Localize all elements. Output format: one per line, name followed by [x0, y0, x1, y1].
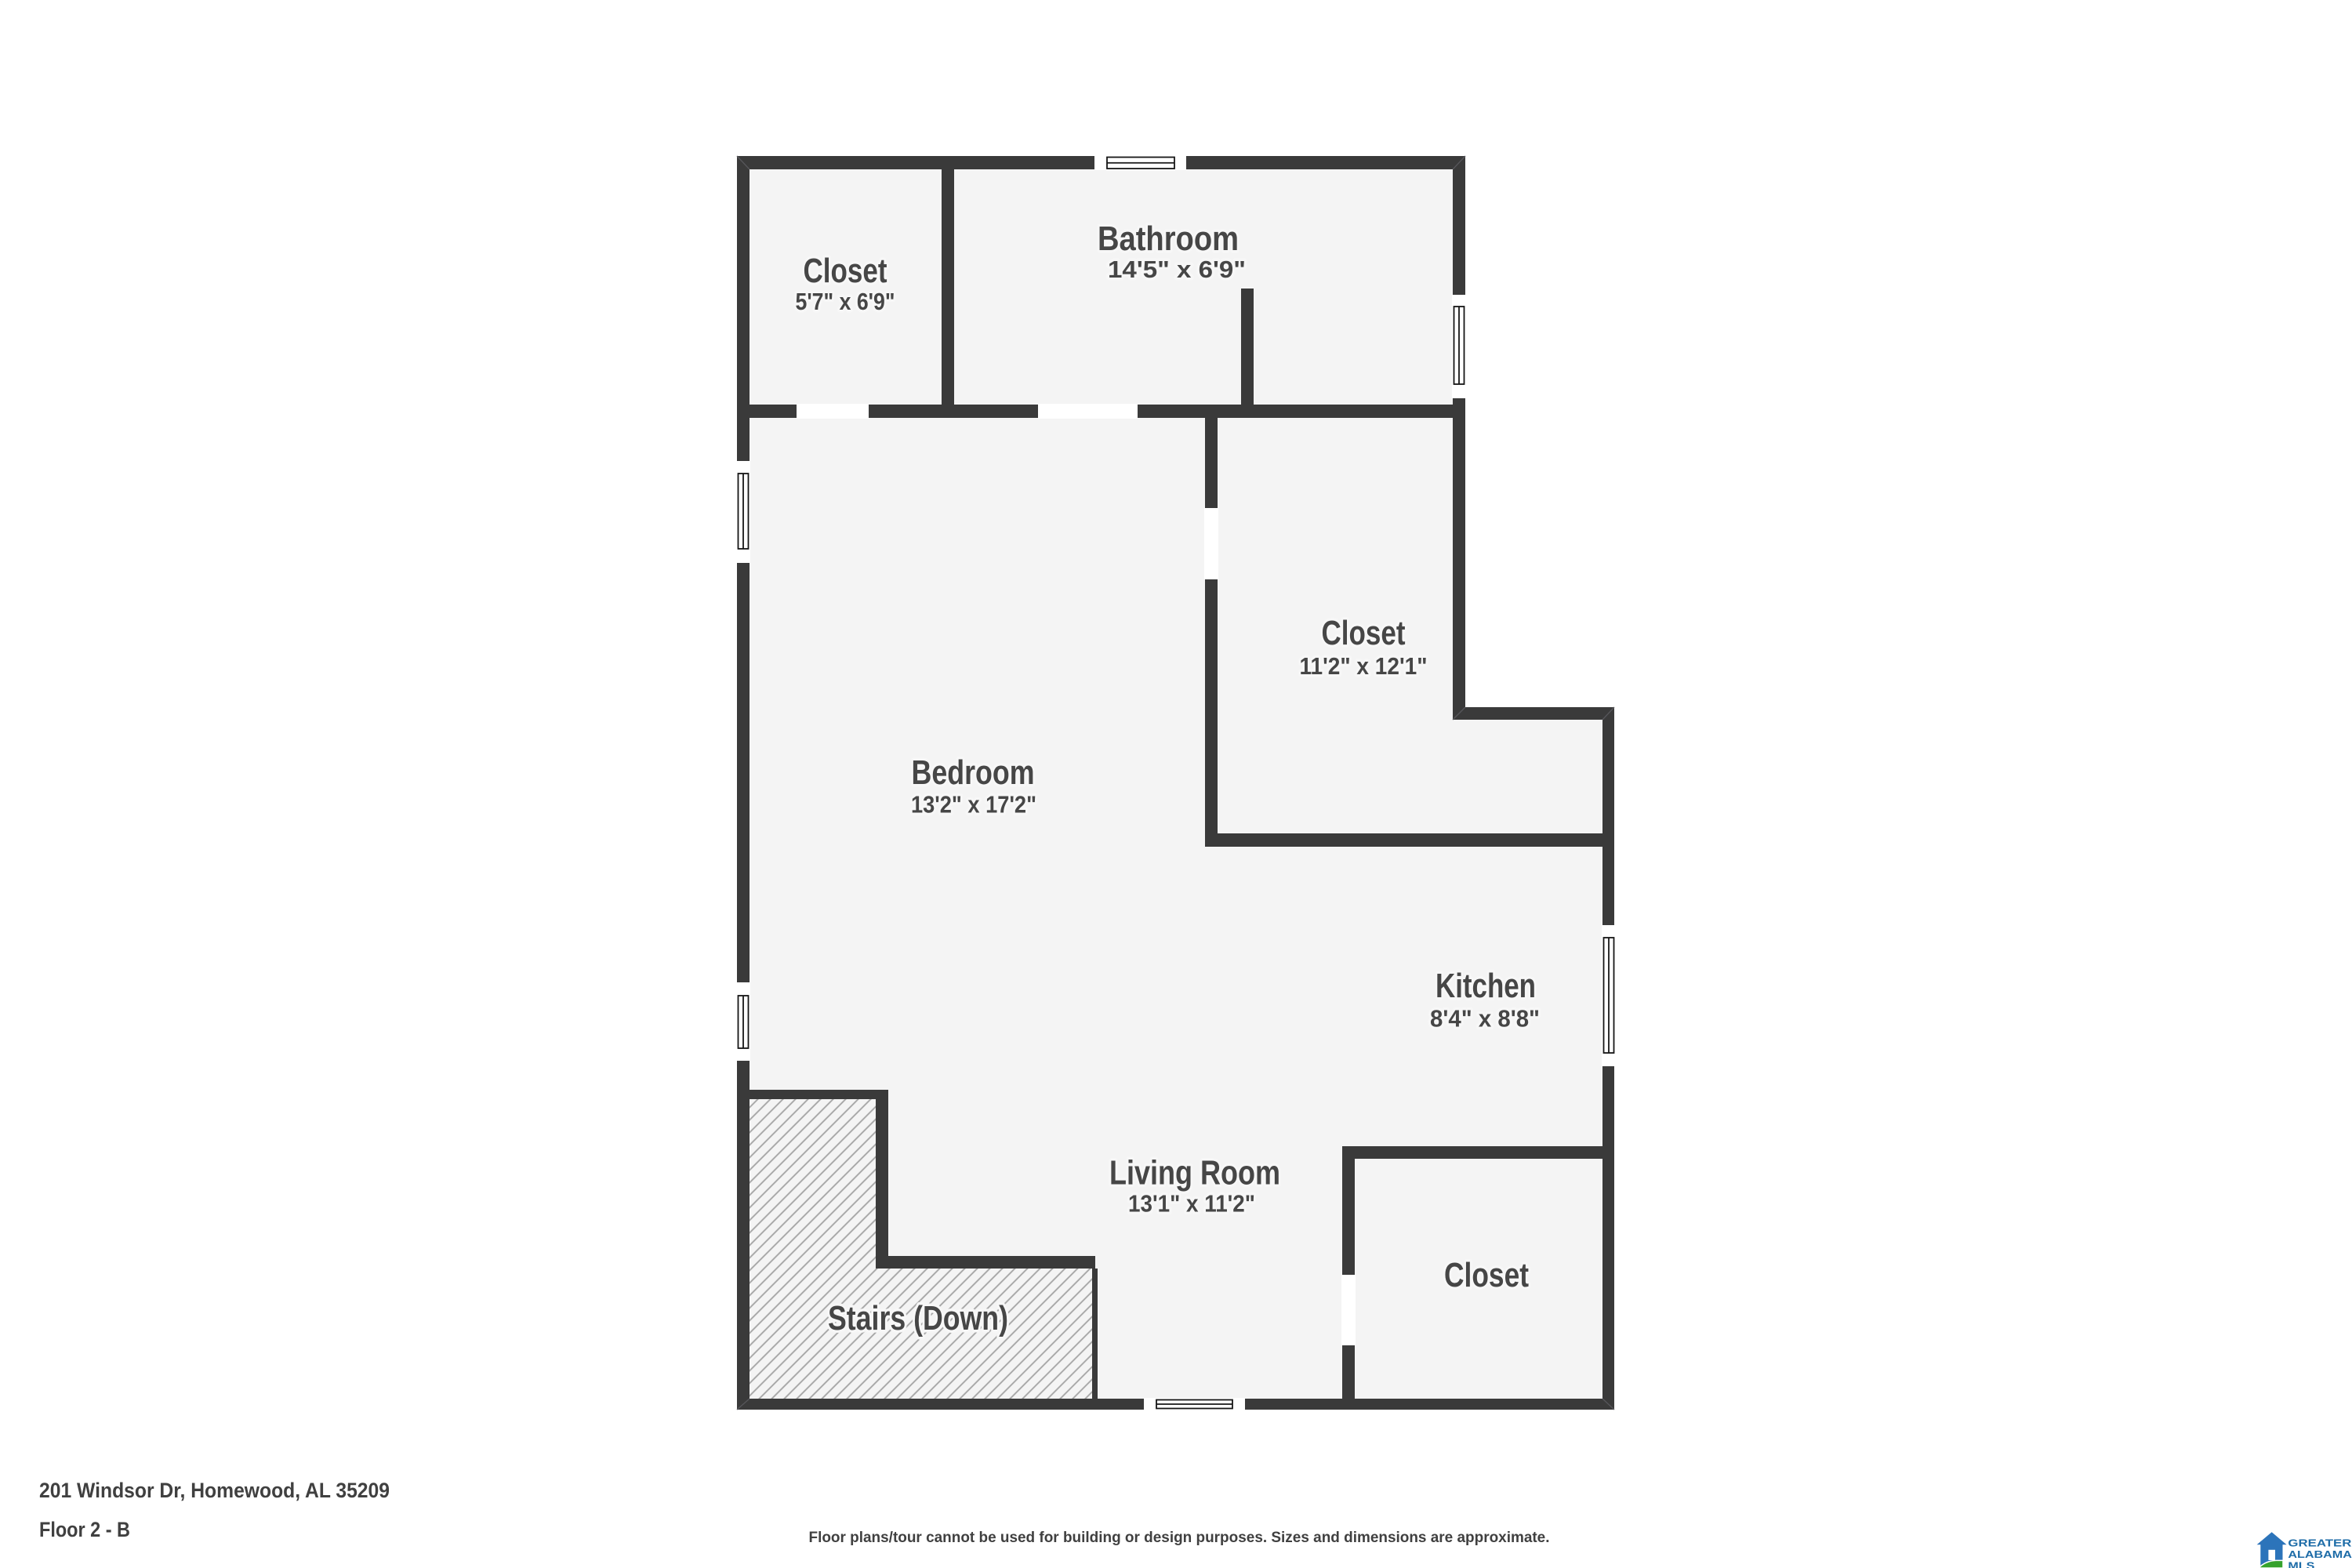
svg-text:Kitchen: Kitchen	[1436, 967, 1536, 1005]
svg-text:Closet: Closet	[1322, 614, 1406, 652]
svg-text:11'2" x 12'1": 11'2" x 12'1"	[1300, 652, 1428, 680]
svg-text:GREATER: GREATER	[2288, 1537, 2352, 1549]
svg-text:13'1" x 11'2": 13'1" x 11'2"	[1128, 1190, 1255, 1218]
svg-text:Closet: Closet	[1444, 1256, 1529, 1294]
svg-text:Stairs (Down): Stairs (Down)	[828, 1299, 1008, 1338]
svg-text:201 Windsor Dr, Homewood, AL 3: 201 Windsor Dr, Homewood, AL 35209	[39, 1479, 390, 1502]
svg-text:Floor plans/tour cannot be use: Floor plans/tour cannot be used for buil…	[809, 1530, 1550, 1546]
svg-text:Bedroom: Bedroom	[912, 753, 1035, 792]
svg-text:MLS: MLS	[2288, 1559, 2314, 1568]
svg-text:13'2" x 17'2": 13'2" x 17'2"	[911, 791, 1036, 818]
svg-text:Living Room: Living Room	[1109, 1154, 1280, 1192]
svg-text:14'5" x 6'9": 14'5" x 6'9"	[1108, 256, 1246, 283]
svg-text:Bathroom: Bathroom	[1098, 220, 1239, 258]
svg-text:Floor 2 - B: Floor 2 - B	[39, 1518, 130, 1541]
svg-text:Closet: Closet	[804, 252, 887, 290]
svg-text:8'4" x 8'8": 8'4" x 8'8"	[1430, 1005, 1540, 1033]
svg-text:5'7" x 6'9": 5'7" x 6'9"	[796, 288, 895, 315]
svg-text:ALABAMA: ALABAMA	[2288, 1548, 2352, 1560]
